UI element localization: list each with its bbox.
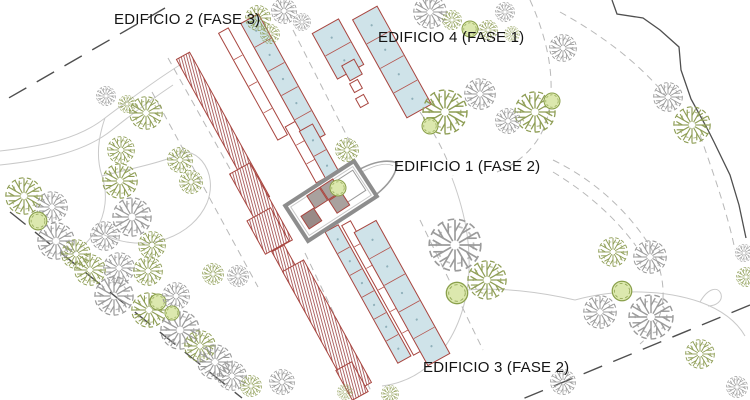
tree-green xyxy=(686,340,715,369)
tree-gray xyxy=(96,86,115,105)
label-edificio-3: EDIFICIO 3 (FASE 2) xyxy=(423,359,569,376)
bush xyxy=(544,93,560,109)
label-edificio-2: EDIFICIO 2 (FASE 3) xyxy=(114,11,260,28)
tree-green xyxy=(442,10,461,29)
tree-green xyxy=(336,139,359,162)
tree-gray xyxy=(198,345,232,379)
tree-gray xyxy=(104,253,135,284)
road-path-dashed xyxy=(700,135,735,250)
site-plan-drawing xyxy=(0,0,750,400)
tree-gray xyxy=(293,13,310,30)
road-path xyxy=(0,85,173,165)
tree-gray xyxy=(634,241,666,273)
building-outline xyxy=(350,79,363,92)
tree-green xyxy=(381,385,398,400)
building-outline xyxy=(356,94,369,107)
tree-green xyxy=(180,171,203,194)
bush xyxy=(612,281,632,301)
site-boundary-dashed xyxy=(520,305,750,400)
tree-green xyxy=(134,257,163,286)
tree-gray xyxy=(584,296,616,328)
tree-gray xyxy=(270,370,295,395)
bush xyxy=(330,180,346,196)
tree-gray xyxy=(726,376,747,397)
tree-gray xyxy=(429,219,481,271)
road-path-dashed xyxy=(560,12,666,96)
tree-green xyxy=(103,164,137,198)
tree-gray xyxy=(550,35,577,62)
tree-green xyxy=(202,263,223,284)
road-path-dashed xyxy=(553,160,663,298)
tree-green xyxy=(599,238,628,267)
site-plan: EDIFICIO 2 (FASE 3) EDIFICIO 4 (FASE 1) … xyxy=(0,0,750,400)
tree-green xyxy=(108,137,135,164)
tree-gray xyxy=(414,0,446,28)
bush xyxy=(165,306,179,320)
tree-gray xyxy=(465,79,496,110)
tree-gray xyxy=(163,283,190,310)
label-edificio-4: EDIFICIO 4 (FASE 1) xyxy=(378,29,524,46)
road-path-dashed xyxy=(553,172,636,246)
road-path-dashed xyxy=(497,0,551,172)
tree-green xyxy=(130,97,162,129)
label-edificio-1: EDIFICIO 1 (FASE 2) xyxy=(394,158,540,175)
tree-green xyxy=(6,178,42,214)
tree-green xyxy=(139,232,166,259)
road-path xyxy=(102,156,176,176)
tree-green xyxy=(736,267,750,286)
tree-green xyxy=(674,107,710,143)
site-boundary-solid xyxy=(612,0,746,238)
tree-green xyxy=(168,148,193,173)
tree-gray xyxy=(735,244,750,261)
bush xyxy=(422,118,438,134)
tree-gray xyxy=(227,265,248,286)
bush xyxy=(446,282,467,303)
tree-gray xyxy=(91,222,120,251)
tree-gray xyxy=(495,2,514,21)
tree-gray xyxy=(272,0,297,23)
tree-gray xyxy=(629,295,673,339)
tree-gray xyxy=(496,109,521,134)
tree-green xyxy=(468,261,506,299)
